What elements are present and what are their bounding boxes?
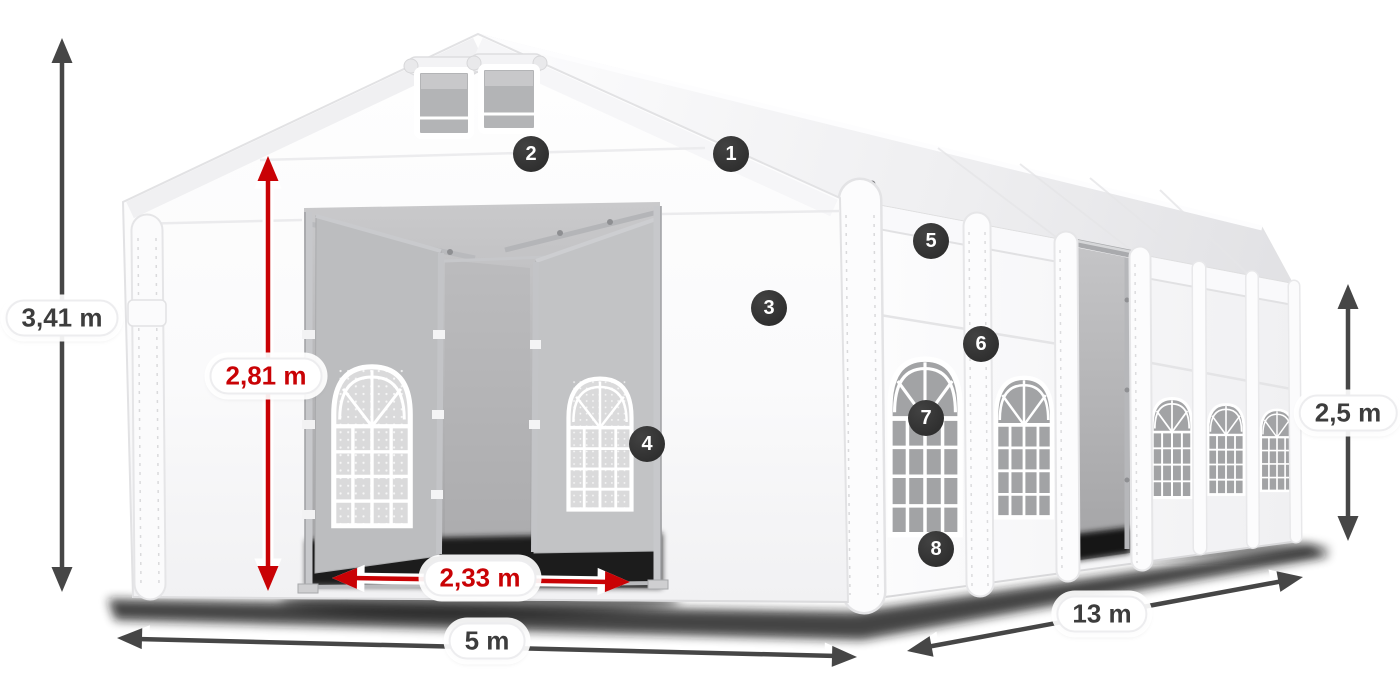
dimension-label-total-height: 3,41 m: [6, 300, 119, 337]
foot-plate: [648, 580, 668, 589]
feature-marker-8[interactable]: 8: [918, 531, 954, 567]
tent-illustration: [0, 0, 1400, 700]
feature-marker-3[interactable]: 3: [751, 290, 787, 326]
right-door-leaf: [529, 219, 658, 553]
door-pole: [439, 253, 441, 554]
tent-dimensions-diagram: 1 2 3 4 5 6 7 8 3,41 m 2,81 m 2,33 m 5 m…: [0, 0, 1400, 700]
dimension-label-side-height: 2,5 m: [1299, 395, 1398, 432]
dimension-label-tent-length: 13 m: [1056, 596, 1147, 633]
feature-marker-7[interactable]: 7: [908, 400, 944, 436]
strap-buckle: [128, 300, 166, 326]
dimension-label-entrance-width: 2,33 m: [424, 560, 537, 597]
feature-marker-6[interactable]: 6: [963, 326, 999, 362]
feature-marker-5[interactable]: 5: [913, 223, 949, 259]
front-left-strap: [128, 230, 166, 588]
side-entrance-opening: [1072, 240, 1132, 561]
door-pole: [534, 262, 536, 552]
dimension-label-tent-width: 5 m: [449, 623, 526, 660]
feature-marker-4[interactable]: 4: [629, 426, 665, 462]
foot-plate: [298, 584, 318, 593]
front-entrance: [298, 202, 668, 593]
dimension-label-entrance-height: 2,81 m: [210, 358, 323, 395]
feature-marker-2[interactable]: 2: [513, 136, 549, 172]
left-door-leaf: [315, 216, 445, 573]
feature-marker-1[interactable]: 1: [713, 136, 749, 172]
